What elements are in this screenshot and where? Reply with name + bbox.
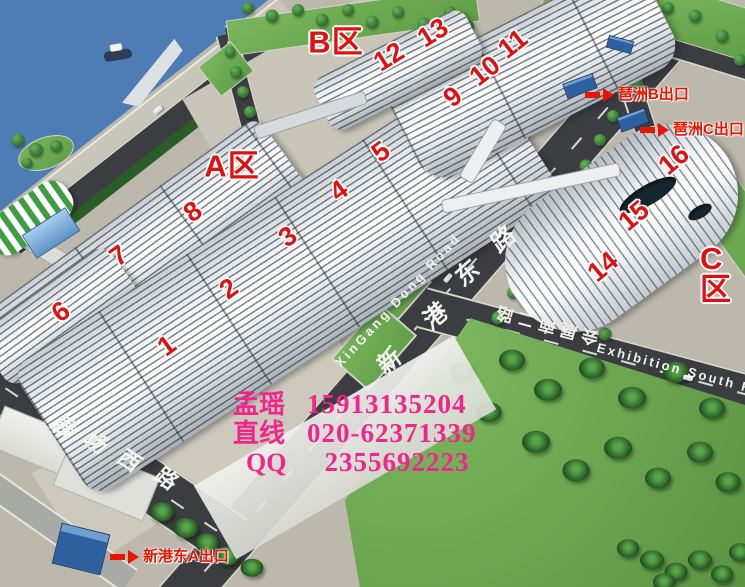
contact-qq-number: 2355692223 bbox=[324, 447, 469, 477]
palm-tree bbox=[716, 472, 741, 492]
tree bbox=[689, 10, 702, 23]
exit-arrowhead-icon bbox=[658, 123, 669, 137]
tree bbox=[12, 134, 25, 147]
palm-tree bbox=[150, 502, 174, 521]
exit-arrowhead-icon bbox=[603, 88, 614, 102]
tree bbox=[392, 6, 404, 18]
exit-arrow-icon bbox=[640, 127, 655, 133]
tree bbox=[662, 2, 674, 14]
palm-tree bbox=[617, 539, 639, 557]
tree bbox=[50, 140, 62, 152]
exit-arrowhead-icon bbox=[128, 550, 139, 564]
contact-qq-row: QQ2355692223 bbox=[246, 449, 469, 476]
tree bbox=[266, 10, 279, 23]
palm-tree bbox=[699, 398, 725, 419]
exit-arrow-icon bbox=[585, 92, 600, 98]
contact-qq-label: QQ bbox=[246, 448, 286, 477]
palm-tree bbox=[688, 550, 712, 569]
tree bbox=[594, 134, 606, 146]
exit-xingang-a: 新港东A出口 bbox=[110, 549, 229, 564]
contact-line-row: 直线020-62371339 bbox=[233, 420, 477, 447]
exit-label: 琶洲B出口 bbox=[618, 87, 689, 102]
exhibition-center-map: XinGang Dong Road 新 港 东 路 展 场 西 路 Exhibi… bbox=[0, 0, 745, 587]
contact-line-label: 直线 bbox=[233, 419, 285, 448]
exit-pazhou-c: 琶洲C出口 bbox=[640, 122, 744, 137]
exit-label: 新港东A出口 bbox=[143, 549, 229, 564]
exit-pazhou-b: 琶洲B出口 bbox=[585, 87, 689, 102]
tree bbox=[716, 30, 729, 43]
tree bbox=[342, 4, 354, 16]
tree bbox=[366, 16, 379, 29]
tree bbox=[225, 47, 236, 58]
tree bbox=[734, 54, 745, 66]
palm-tree bbox=[563, 459, 590, 481]
palm-tree bbox=[579, 358, 605, 379]
tree bbox=[242, 2, 254, 14]
contact-name-row: 孟瑶15913135204 bbox=[233, 391, 467, 418]
contact-name-label: 孟瑶 bbox=[233, 390, 285, 419]
contact-line-phone: 020-62371339 bbox=[307, 418, 477, 448]
palm-tree bbox=[729, 543, 745, 561]
area-label-b: B区 bbox=[308, 27, 363, 58]
palm-tree bbox=[653, 573, 675, 587]
palm-tree bbox=[174, 518, 199, 538]
exit-arrow-icon bbox=[110, 554, 125, 560]
palm-tree bbox=[711, 565, 733, 583]
area-label-a: A区 bbox=[204, 151, 259, 182]
palm-tree bbox=[645, 468, 671, 489]
contact-name-phone: 15913135204 bbox=[307, 389, 467, 419]
tree bbox=[230, 66, 242, 78]
tree bbox=[292, 4, 304, 16]
tree bbox=[244, 106, 256, 118]
palm-tree bbox=[687, 442, 713, 463]
palm-tree bbox=[241, 559, 264, 577]
tree bbox=[29, 143, 43, 157]
palm-tree bbox=[640, 550, 664, 569]
area-label-c: C区 bbox=[700, 243, 732, 305]
tree bbox=[237, 86, 249, 98]
palm-tree bbox=[499, 350, 525, 371]
tree bbox=[22, 158, 33, 169]
exit-label: 琶洲C出口 bbox=[673, 122, 744, 137]
